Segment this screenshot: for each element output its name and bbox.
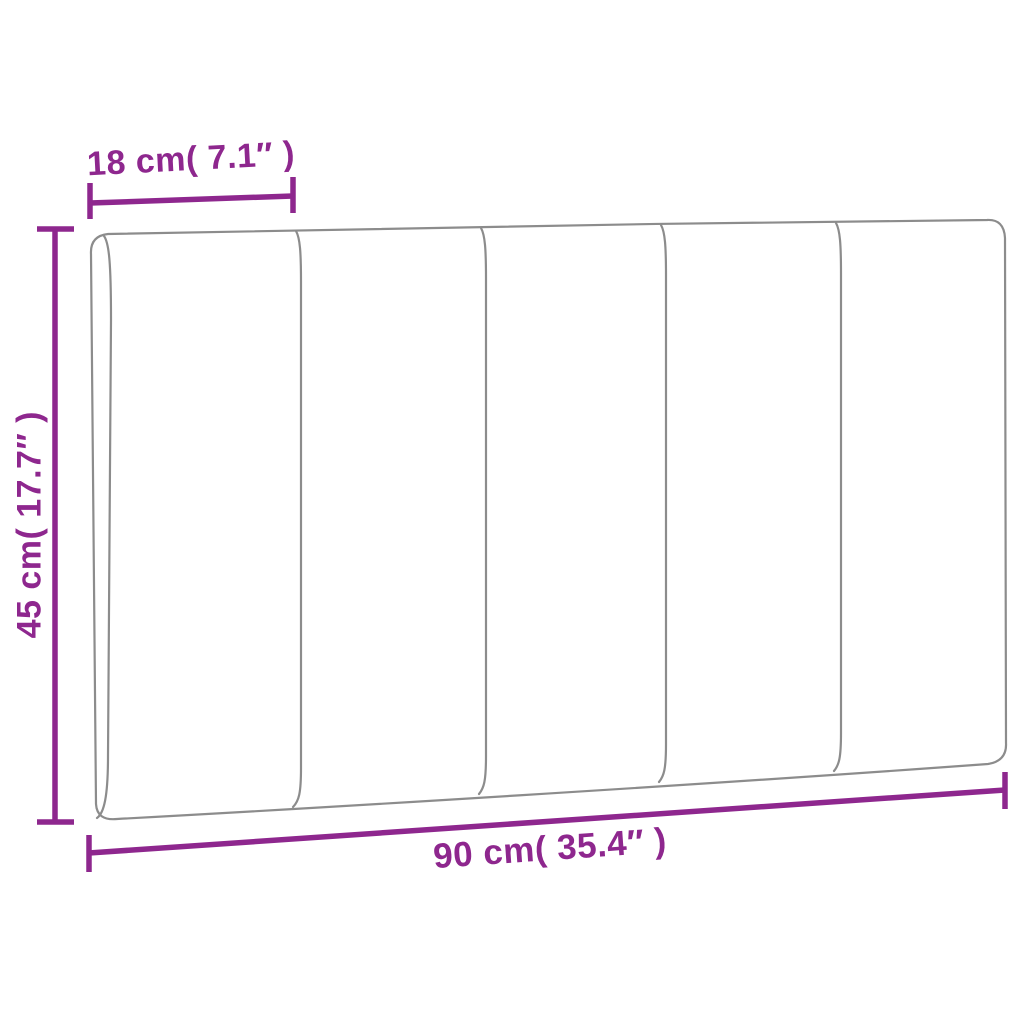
panel-seam-2 (479, 228, 486, 794)
dim-top-line (90, 196, 293, 203)
panel-seam-4 (834, 223, 841, 771)
panel-seam-1 (293, 231, 301, 807)
headboard-outline (91, 220, 1006, 819)
dimension-lines-group (37, 177, 1005, 872)
dimension-label-left-height: 45 cm( 17.7″ ) (11, 395, 48, 655)
headboard-outline-group (91, 220, 1006, 819)
product-dimension-diagram: 18 cm( 7.1″ ) 45 cm( 17.7″ ) 90 cm( 35.4… (0, 0, 1024, 1024)
left-edge-seam (97, 236, 111, 818)
panel-seam-3 (659, 225, 666, 782)
